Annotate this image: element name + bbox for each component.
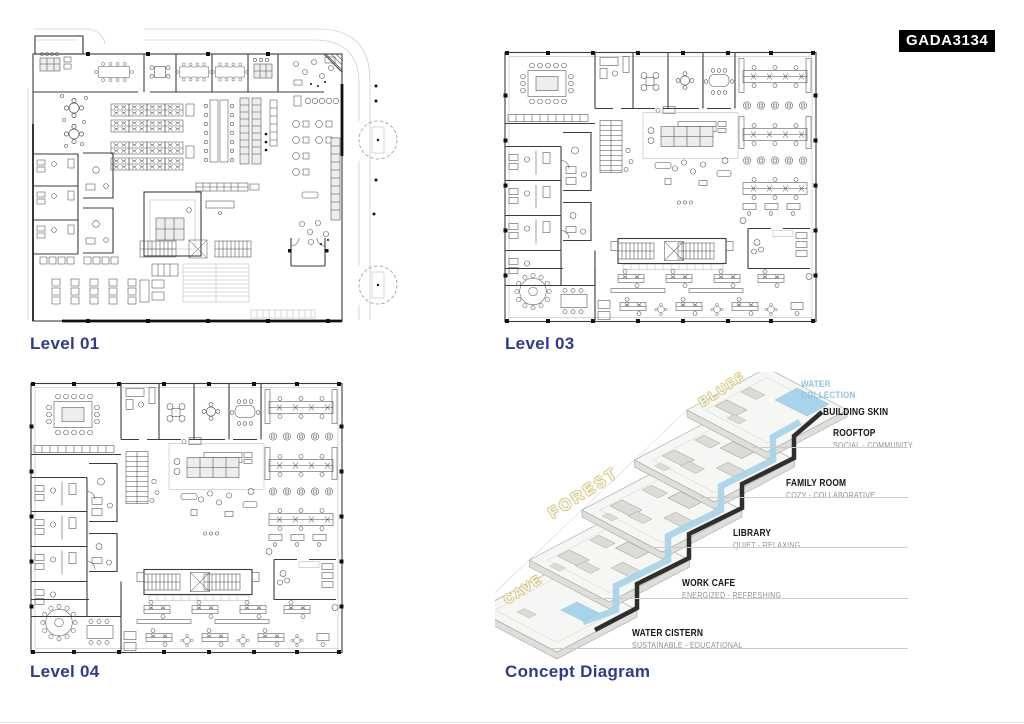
annotation-water-cistern-leader-line — [548, 648, 908, 649]
annotation-family-room-name: FAMILY ROOM — [786, 478, 871, 489]
board-bottom-edge — [0, 722, 1024, 723]
plan-title-level-01: Level 01 — [30, 334, 100, 354]
annotation-work-cafe: WORK CAFE ENERGIZED - REFRESHING — [682, 578, 795, 600]
annotation-work-cafe-leader-line — [594, 598, 908, 599]
annotation-library-leader-line — [648, 547, 908, 548]
annotation-water-cistern-name: WATER CISTERN — [632, 628, 737, 639]
concept-diagram-title: Concept Diagram — [505, 662, 650, 682]
annotation-rooftop-leader-line — [752, 447, 908, 448]
water-collection-label: WATER COLLECTION — [801, 379, 848, 402]
plan-title-level-03: Level 03 — [505, 334, 575, 354]
annotation-library-desc: QUIET - RELAXING — [733, 541, 800, 550]
annotation-rooftop-desc: SOCIAL - COMMUNITY — [833, 441, 913, 450]
annotation-family-room-desc: COZY - COLLABORATIVE — [786, 491, 875, 500]
annotation-family-room-leader-line — [700, 497, 908, 498]
annotation-library-name: LIBRARY — [733, 528, 797, 539]
level-01-floor-plan — [26, 24, 400, 326]
annotation-water-cistern: WATER CISTERN SUSTAINABLE - EDUCATIONAL — [632, 628, 757, 650]
level-04-floor-plan — [29, 381, 344, 655]
annotation-building-skin: BUILDING SKIN — [823, 407, 888, 418]
annotation-work-cafe-name: WORK CAFE — [682, 578, 777, 589]
board-code-badge: GADA3134 — [899, 30, 995, 52]
level-03-floor-plan — [503, 50, 818, 324]
annotation-rooftop-name: ROOFTOP — [833, 428, 909, 439]
plan-title-level-04: Level 04 — [30, 662, 100, 682]
